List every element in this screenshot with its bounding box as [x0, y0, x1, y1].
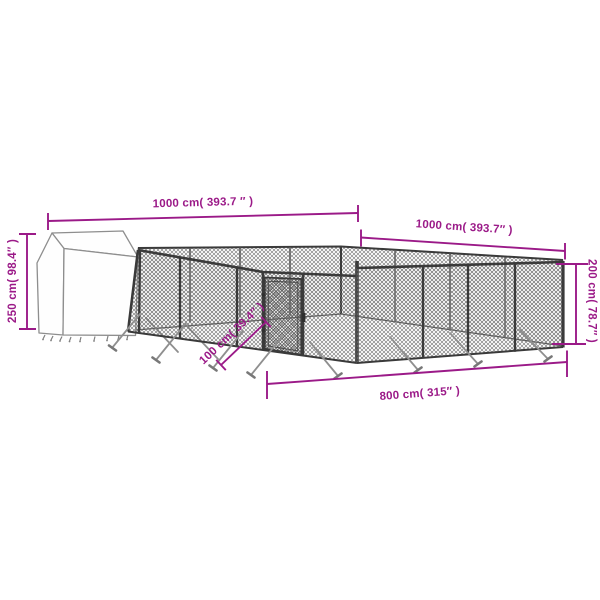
- dim-label-top-right-side: 1000 cm( 393.7″ ): [415, 218, 513, 236]
- dim-label-fence-height: 200 cm( 78.7″ ): [586, 259, 598, 343]
- dim-shelter-height: 250 cm( 98.4″ ): [7, 234, 36, 329]
- dim-label-shelter-height: 250 cm( 98.4″ ): [7, 239, 19, 323]
- dim-label-top-left-side: 1000 cm( 393.7 ″ ): [153, 196, 254, 211]
- door-hinge-top: [262, 293, 265, 296]
- shelter: [37, 231, 138, 342]
- kennel-door: [262, 272, 306, 356]
- shelter-side: [63, 249, 138, 336]
- shelter-gable: [37, 233, 64, 335]
- shelter-tie-downs: [42, 335, 128, 342]
- door-hinge-bottom: [262, 329, 265, 332]
- fence-right-wall: [357, 261, 563, 363]
- dim-label-front-width: 800 cm( 315″ ): [379, 385, 460, 403]
- dim-top-left-side: 1000 cm( 393.7 ″ ): [48, 196, 358, 230]
- door-latch: [302, 313, 305, 322]
- product-image-canvas: 1000 cm( 393.7 ″ ) 1000 cm( 393.7″ ) 250…: [0, 0, 600, 600]
- kennel-dimension-diagram: 1000 cm( 393.7 ″ ) 1000 cm( 393.7″ ) 250…: [0, 0, 600, 600]
